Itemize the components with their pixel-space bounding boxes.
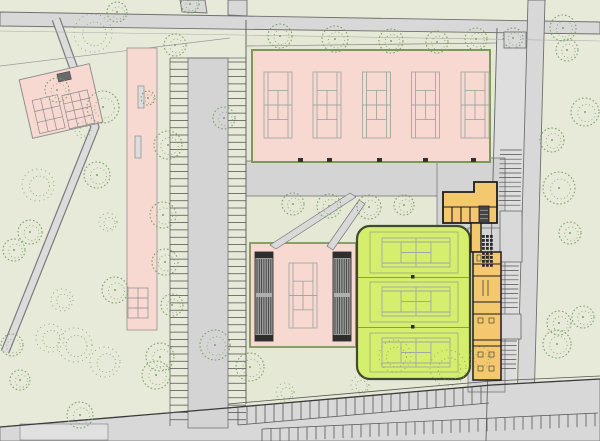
tree-trunk: [155, 374, 157, 376]
grandstand-mid-band: [334, 293, 350, 297]
tree-trunk: [569, 232, 571, 234]
locker-cell: [482, 252, 485, 255]
tree-trunk: [13, 249, 15, 251]
locker-cell: [490, 239, 493, 242]
net-post: [411, 325, 415, 329]
locker-cell: [482, 239, 485, 242]
tree-trunk: [582, 316, 584, 318]
bay-block: [499, 314, 521, 339]
tree-trunk: [249, 366, 251, 368]
tree-trunk: [558, 322, 560, 324]
tree-trunk: [162, 214, 164, 216]
tree-trunk: [223, 117, 225, 119]
tree-trunk: [189, 3, 191, 5]
tree-trunk: [551, 139, 553, 141]
tree-trunk: [556, 343, 558, 345]
locker-cell: [482, 264, 485, 267]
locker-cell: [490, 252, 493, 255]
locker-cell: [482, 247, 485, 250]
locker-cell: [486, 239, 489, 242]
gate-mark: [327, 158, 332, 162]
changing-rooms-wing: [473, 252, 501, 380]
grandstand-cap: [333, 335, 351, 341]
grandstand-cap: [333, 252, 351, 258]
locker-cell: [490, 235, 493, 238]
net-post: [411, 275, 415, 279]
tree-trunk: [562, 27, 564, 29]
tree-trunk: [512, 37, 514, 39]
tree-trunk: [475, 38, 477, 40]
locker-cell: [486, 252, 489, 255]
tree-trunk: [214, 344, 216, 346]
grandstand-cap: [255, 335, 273, 341]
locker-cell: [490, 243, 493, 246]
parking-aisle-west: [188, 58, 228, 428]
bay-block: [500, 211, 522, 262]
locker-cell: [482, 256, 485, 259]
locker-cell: [486, 235, 489, 238]
tree-trunk: [279, 35, 281, 37]
tree-trunk: [292, 203, 294, 205]
north-road-branch: [180, 0, 207, 13]
gate-mark: [298, 158, 303, 162]
locker-cell: [486, 247, 489, 250]
tree-trunk: [164, 261, 166, 263]
tree-trunk: [390, 40, 392, 42]
locker-cell: [490, 256, 493, 259]
bay-block: [504, 32, 526, 48]
site-plan-drawing: [0, 0, 600, 441]
locker-cell: [486, 256, 489, 259]
tree-trunk: [368, 206, 370, 208]
locker-cell: [486, 260, 489, 263]
tree-trunk: [114, 289, 116, 291]
locker-cell: [482, 260, 485, 263]
tree-trunk: [102, 106, 104, 108]
tree-trunk: [79, 414, 81, 416]
tree-trunk: [558, 187, 560, 189]
tree-trunk: [116, 11, 118, 13]
tree-trunk: [96, 174, 98, 176]
north-access-road: [228, 0, 247, 16]
tree-trunk: [403, 204, 405, 206]
tree-trunk: [11, 344, 13, 346]
tree-trunk: [328, 205, 330, 207]
tree-trunk: [174, 44, 176, 46]
gate-mark: [423, 158, 428, 162]
locker-cell: [482, 243, 485, 246]
tree-trunk: [436, 41, 438, 43]
tree-trunk: [584, 111, 586, 113]
locker-cell: [486, 243, 489, 246]
connector-wing: [471, 223, 481, 252]
tree-trunk: [167, 144, 169, 146]
tree-trunk: [334, 38, 336, 40]
grandstand-mid-band: [256, 293, 272, 297]
locker-cell: [490, 260, 493, 263]
locker-cell: [490, 247, 493, 250]
tree-trunk: [171, 304, 173, 306]
driveway-block: [20, 424, 108, 440]
gate-mark: [377, 158, 382, 162]
indoor-tennis-hall: [357, 226, 470, 379]
grandstand-cap: [255, 252, 273, 258]
tree-trunk: [566, 49, 568, 51]
locker-cell: [482, 235, 485, 238]
tree-trunk: [159, 356, 161, 358]
tree-trunk: [29, 231, 31, 233]
gate-mark: [471, 158, 476, 162]
tree-trunk: [56, 89, 58, 91]
site-plan: [0, 0, 600, 441]
tree-trunk: [147, 97, 149, 99]
locker-cell: [490, 264, 493, 267]
locker-cell: [486, 264, 489, 267]
tree-trunk: [19, 379, 21, 381]
bench: [135, 136, 141, 158]
